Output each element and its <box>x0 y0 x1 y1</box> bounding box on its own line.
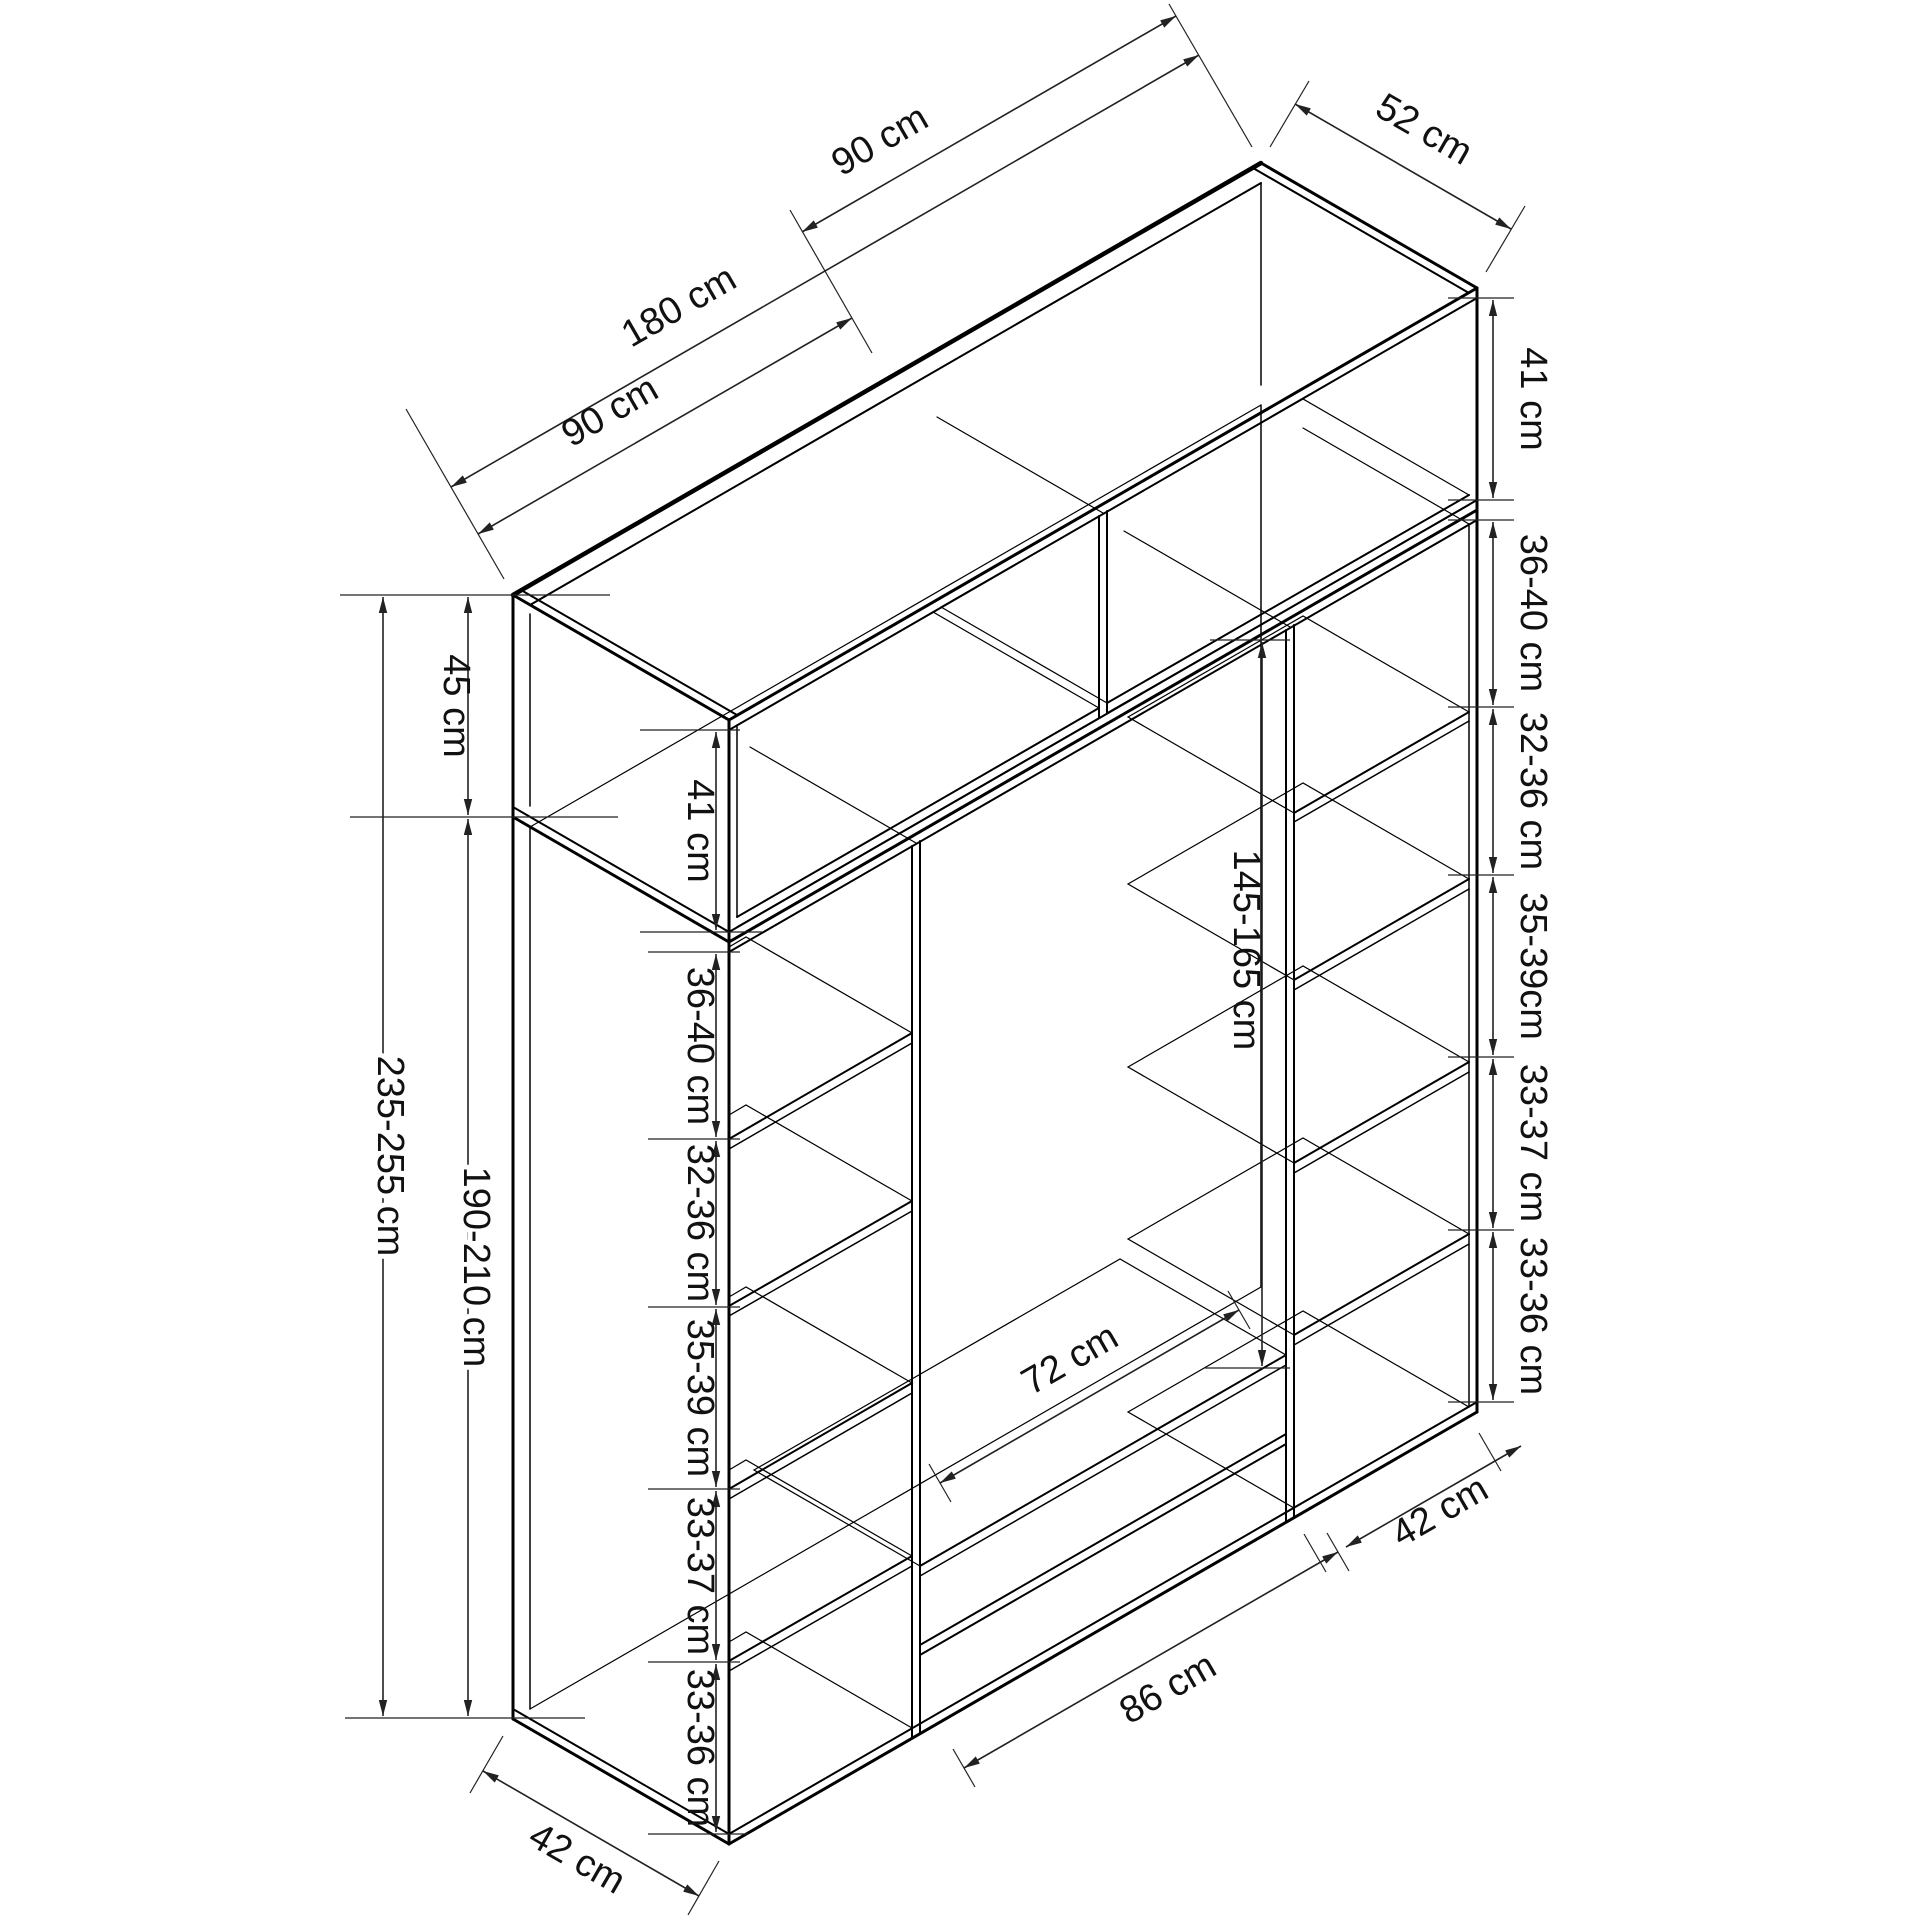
top-left-depth-edge <box>513 595 729 720</box>
wardrobe-dimension-diagram: 90 cm 180 cm 90 cm 52 cm 45 cm 235-255 c… <box>0 0 1920 1920</box>
dim-label-drawer-width: 72 cm <box>1015 1316 1126 1404</box>
top-depth-edge <box>1261 163 1477 288</box>
right-shelf-column <box>1128 616 1469 1508</box>
dim-label-42-left: 42 cm <box>522 1815 633 1903</box>
dim-label-top-right-half: 90 cm <box>825 97 936 185</box>
bottom-front-edge <box>729 1412 1477 1844</box>
dim-label-total-height: 235-255 cm <box>369 1056 411 1257</box>
dim-label-middle-width: 86 cm <box>1113 1645 1224 1733</box>
dim-label-top-left-half: 90 cm <box>555 368 666 456</box>
top-cabinet <box>729 399 1469 927</box>
dim-label-right-41: 41 cm <box>1512 347 1554 450</box>
top-front-edge <box>729 288 1477 720</box>
dim-label-left-shelf-2: 32-36 cm <box>679 1144 721 1302</box>
dim-label-depth: 52 cm <box>1369 86 1480 174</box>
dim-label-right-shelf-4: 33-37 cm <box>1512 1064 1554 1222</box>
drawer-top-edge <box>920 1355 1286 1566</box>
dim-86 <box>964 1552 1338 1768</box>
dim-label-45: 45 cm <box>435 654 477 757</box>
middle-section <box>750 428 1469 1738</box>
dim-label-right-shelf-1: 36-40 cm <box>1512 534 1554 692</box>
dim-top-right-half <box>802 16 1176 232</box>
topbox-bottom-front-edge <box>729 510 1477 942</box>
dim-top-left-half <box>478 318 852 534</box>
dim-label-top-total: 180 cm <box>615 257 744 356</box>
dim-label-left-shelf-1: 36-40 cm <box>679 967 721 1125</box>
diagram-canvas: 90 cm 180 cm 90 cm 52 cm 45 cm 235-255 c… <box>0 0 1920 1920</box>
dim-label-body-height: 190-210 cm <box>455 1167 497 1368</box>
topbox-left-shelf <box>737 708 1099 917</box>
dim-label-left-shelf-4: 33-37 cm <box>679 1497 721 1655</box>
drawers <box>920 1355 1286 1655</box>
dim-label-right-shelf-2: 32-36 cm <box>1512 712 1554 870</box>
dim-label-right-shelf-5: 33-36 cm <box>1512 1237 1554 1395</box>
dim-label-left-shelf-5: 33-36 cm <box>679 1669 721 1827</box>
dim-label-hanging-height: 145-165 cm <box>1225 850 1267 1051</box>
plinth-line <box>729 1402 1477 1834</box>
topbox-right-shelf <box>1107 495 1469 703</box>
wardrobe-outline <box>513 163 1477 1844</box>
back-top-junction <box>530 405 1261 827</box>
dim-label-left-41: 41 cm <box>679 779 721 882</box>
dim-label-42-right: 42 cm <box>1385 1468 1496 1556</box>
left-shelf-column <box>729 937 912 1728</box>
dim-label-left-shelf-3: 35-39 cm <box>679 1319 721 1477</box>
back-bottom-junction <box>530 1287 1261 1709</box>
dim-label-right-shelf-3: 35-39cm <box>1512 892 1554 1040</box>
